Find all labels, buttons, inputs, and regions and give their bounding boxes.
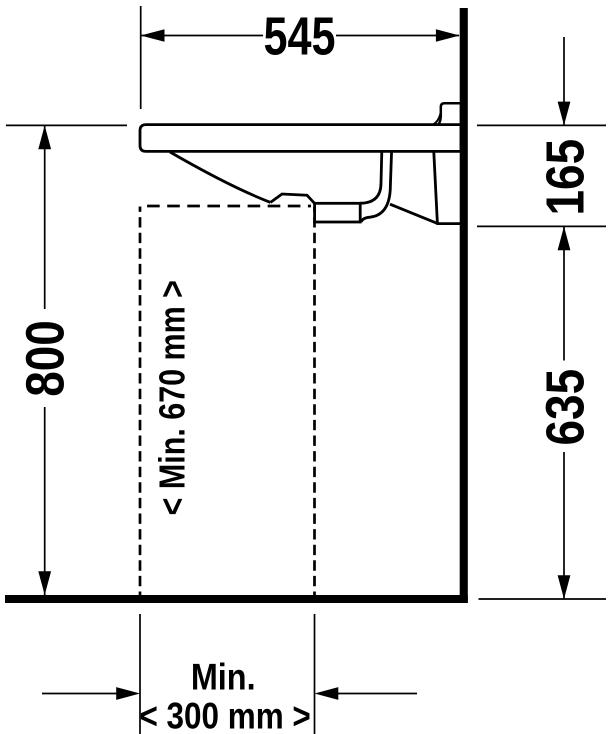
svg-text:545: 545: [263, 7, 335, 67]
svg-text:165: 165: [535, 139, 595, 216]
svg-text:Min.: Min.: [191, 658, 256, 698]
svg-text:635: 635: [535, 369, 595, 446]
svg-text:< 300 mm >: < 300 mm >: [139, 696, 310, 734]
svg-text:< Min. 670 mm >: < Min. 670 mm >: [153, 280, 193, 515]
svg-text:800: 800: [15, 320, 75, 397]
